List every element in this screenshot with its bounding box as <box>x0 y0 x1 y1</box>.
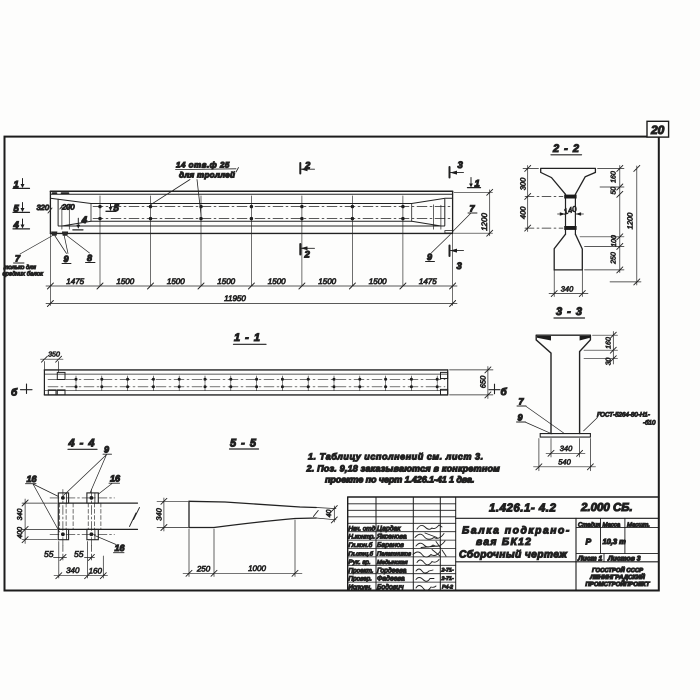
svg-text:Провер.: Провер. <box>349 576 372 583</box>
svg-text:14 отв.ф 25: 14 отв.ф 25 <box>176 161 230 170</box>
svg-text:б: б <box>11 388 18 399</box>
svg-text:Стадия: Стадия <box>578 521 601 528</box>
svg-text:40: 40 <box>326 510 333 518</box>
svg-text:55: 55 <box>44 549 54 559</box>
svg-text:340: 340 <box>17 509 24 521</box>
svg-text:160: 160 <box>610 171 617 183</box>
svg-text:1500: 1500 <box>318 277 336 286</box>
svg-text:Фадеева: Фадеева <box>377 576 405 583</box>
svg-text:Гл.спец.б: Гл.спец.б <box>349 551 374 558</box>
svg-text:вая БК12: вая БК12 <box>476 537 532 548</box>
svg-text:9: 9 <box>64 254 69 264</box>
svg-text:Сборочный чертеж: Сборочный чертеж <box>459 550 568 561</box>
svg-text:10,3 т: 10,3 т <box>603 537 627 546</box>
svg-text:Цардак: Цардак <box>377 525 401 532</box>
svg-text:650: 650 <box>479 375 488 388</box>
svg-text:400: 400 <box>17 527 24 539</box>
svg-text:Лист 1: Лист 1 <box>577 556 603 563</box>
svg-text:160: 160 <box>606 337 613 349</box>
svg-text:9: 9 <box>427 252 432 262</box>
svg-text:-б10: -б10 <box>643 420 656 427</box>
svg-text:1.426.1- 4.2: 1.426.1- 4.2 <box>489 503 556 515</box>
svg-text:ЛЕНИНГРАДСКИЙ: ЛЕНИНГРАДСКИЙ <box>589 573 645 581</box>
svg-text:320: 320 <box>37 203 50 212</box>
svg-text:2.000 СБ.: 2.000 СБ. <box>580 502 633 514</box>
svg-text:16: 16 <box>27 474 38 484</box>
svg-text:540: 540 <box>558 458 571 467</box>
svg-text:2. Поз. 9,18 заказываются в ко: 2. Поз. 9,18 заказываются в конкретном <box>306 464 501 474</box>
svg-text:1000: 1000 <box>248 564 266 573</box>
svg-text:20: 20 <box>650 123 665 137</box>
svg-text:Рук. гр.: Рук. гр. <box>349 559 371 566</box>
svg-text:Балка подкрано-: Балка подкрано- <box>462 526 571 537</box>
svg-text:100: 100 <box>611 235 618 247</box>
svg-text:Гл.кон.б: Гл.кон.б <box>349 542 373 549</box>
svg-text:2-71-: 2-71- <box>441 568 454 574</box>
svg-text:Н.контр.: Н.контр. <box>349 534 376 541</box>
svg-text:Гордеева: Гордеева <box>377 567 407 574</box>
svg-text:5: 5 <box>114 203 120 214</box>
svg-text:Листов 3: Листов 3 <box>607 555 641 562</box>
svg-text:7: 7 <box>15 254 21 264</box>
svg-text:1200: 1200 <box>626 212 635 230</box>
svg-text:1500: 1500 <box>116 277 134 286</box>
svg-text:средних балок: средних балок <box>3 270 45 277</box>
svg-text:4: 4 <box>81 215 88 226</box>
svg-text:5 - 5: 5 - 5 <box>230 438 257 450</box>
svg-text:1. Таблицу исполнений см. лис: 1. Таблицу исполнений см. лист 3. <box>308 452 484 462</box>
svg-text:1475: 1475 <box>66 277 84 286</box>
svg-text:7: 7 <box>519 397 525 407</box>
svg-text:55: 55 <box>74 549 84 559</box>
svg-text:1 - 1: 1 - 1 <box>234 332 261 344</box>
svg-text:9: 9 <box>104 445 109 455</box>
svg-text:300: 300 <box>519 177 528 190</box>
svg-text:160: 160 <box>89 567 103 576</box>
svg-text:2-71-: 2-71- <box>441 576 454 582</box>
svg-text:Р4-2: Р4-2 <box>442 585 453 591</box>
svg-text:50: 50 <box>610 187 617 195</box>
svg-text:2: 2 <box>304 250 311 261</box>
svg-text:Р: Р <box>586 537 592 547</box>
svg-text:Исполн.: Исполн. <box>349 584 372 591</box>
svg-text:Палатников: Палатников <box>377 552 411 558</box>
svg-text:3: 3 <box>457 261 463 272</box>
svg-text:250: 250 <box>196 565 211 574</box>
svg-text:9: 9 <box>518 413 523 423</box>
svg-text:3 - 3: 3 - 3 <box>556 306 583 318</box>
svg-text:4 - 4: 4 - 4 <box>68 438 96 450</box>
svg-text:340: 340 <box>560 444 573 453</box>
svg-text:340: 340 <box>155 507 164 520</box>
svg-text:2 - 2: 2 - 2 <box>552 143 580 155</box>
svg-text:1500: 1500 <box>217 277 235 286</box>
svg-text:250: 250 <box>611 252 618 265</box>
svg-text:2: 2 <box>304 160 311 171</box>
svg-text:30: 30 <box>606 358 613 366</box>
svg-text:ГОСТ-5264-80-Н1-: ГОСТ-5264-80-Н1- <box>597 412 650 419</box>
svg-text:только для: только для <box>4 264 37 271</box>
svg-text:350: 350 <box>48 352 60 359</box>
svg-text:ГОССТРОЙ СССР: ГОССТРОЙ СССР <box>592 566 643 574</box>
svg-text:1500: 1500 <box>268 277 286 286</box>
svg-text:Медынская: Медынская <box>377 559 408 566</box>
svg-text:для троллей: для троллей <box>179 171 235 180</box>
svg-text:1200: 1200 <box>480 213 489 231</box>
svg-text:3: 3 <box>458 160 464 171</box>
svg-text:Яксенова: Яксенова <box>376 534 407 541</box>
svg-text:7: 7 <box>470 204 476 214</box>
svg-text:8: 8 <box>87 253 92 263</box>
svg-text:16: 16 <box>110 474 121 484</box>
svg-text:340: 340 <box>66 566 80 575</box>
svg-text:Масшт.: Масшт. <box>627 521 650 528</box>
svg-text:400: 400 <box>519 206 528 219</box>
svg-text:Бодович: Бодович <box>377 584 404 591</box>
svg-text:Масса: Масса <box>603 521 621 528</box>
svg-text:1475: 1475 <box>419 277 437 286</box>
svg-text:340: 340 <box>561 285 574 294</box>
svg-text:б: б <box>501 387 508 398</box>
svg-text:1500: 1500 <box>369 277 387 286</box>
svg-text:проекте по черт 1.426.1-41 1 д: проекте по черт 1.426.1-41 1 два. <box>325 475 474 485</box>
svg-text:Нач. отд: Нач. отд <box>349 525 376 532</box>
svg-text:ПРОМСТРОЙПРОЕКТ: ПРОМСТРОЙПРОЕКТ <box>585 580 650 588</box>
svg-text:Баранов: Баранов <box>377 542 404 549</box>
svg-text:11950: 11950 <box>224 294 246 303</box>
svg-text:Проект.: Проект. <box>349 567 374 574</box>
svg-text:1500: 1500 <box>167 277 185 286</box>
